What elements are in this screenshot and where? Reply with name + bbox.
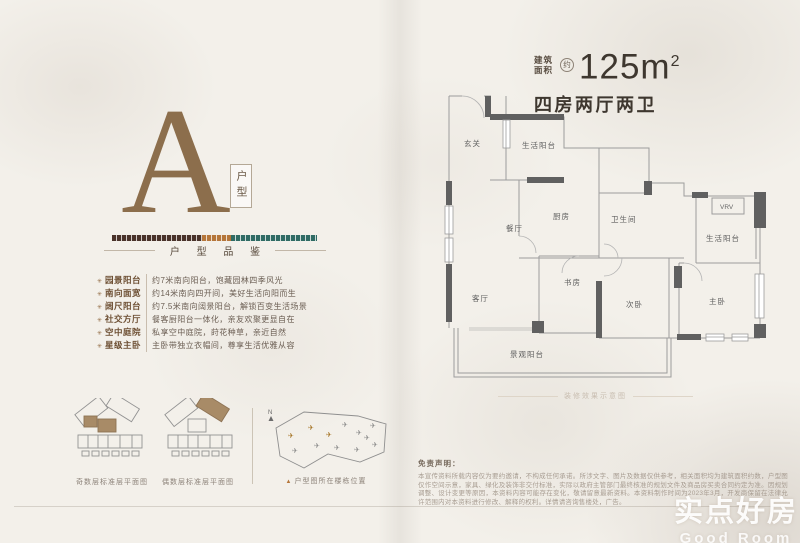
diagram-divider bbox=[252, 408, 253, 484]
room-label: 次卧 bbox=[626, 299, 643, 309]
feature-desc: 约14米南向四开间，美好生活向阳而生 bbox=[146, 287, 296, 300]
title-rule-right bbox=[275, 250, 326, 251]
svg-text:✈: ✈ bbox=[370, 423, 376, 430]
svg-text:✈: ✈ bbox=[342, 422, 348, 429]
windows bbox=[445, 120, 764, 341]
odd-floor-plate-diagram bbox=[75, 398, 142, 456]
svg-text:✈: ✈ bbox=[314, 443, 320, 450]
svg-text:✈: ✈ bbox=[364, 435, 370, 442]
room-label: 玄关 bbox=[464, 138, 481, 148]
room-label: 主卧 bbox=[709, 296, 726, 306]
feature-label: 园景阳台 bbox=[105, 274, 141, 287]
section-title-text: 户 型 品 鉴 bbox=[163, 243, 267, 258]
feature-desc: 私享空中庭院，莳花种草，亲近自然 bbox=[146, 326, 286, 339]
list-item: ✳ 南向面宽 约14米南向四开间，美好生活向阳而生 bbox=[97, 287, 349, 300]
bar-segment-copper bbox=[202, 235, 231, 241]
flower-bullet-icon: ✳ bbox=[97, 289, 102, 302]
floorplate-and-siteplan-diagrams: N ✈ ✈ ✈ ✈ ✈ ✈ ✈ ✈ ✈ ✈ ✈ ✈ bbox=[30, 398, 390, 480]
svg-text:✈: ✈ bbox=[292, 448, 298, 455]
title-rule-left bbox=[104, 250, 155, 251]
feature-label: 星级主卧 bbox=[105, 339, 141, 352]
room-label: 书房 bbox=[564, 277, 581, 287]
feature-desc: 主卧带独立衣帽间，尊享生活优雅从容 bbox=[146, 339, 295, 352]
feature-label: 阔尺阳台 bbox=[105, 300, 141, 313]
vrv-label: VRV bbox=[720, 204, 734, 211]
flower-bullet-icon: ✳ bbox=[97, 315, 102, 328]
svg-text:✈: ✈ bbox=[308, 425, 314, 432]
disclaimer-block: 免责声明： 本宣传资料所载内容仅为要约邀请，不构成任何承诺。所涉文字、图片及数据… bbox=[418, 458, 788, 507]
even-floor-plate-diagram bbox=[165, 398, 232, 456]
disclaimer-text: 本宣传资料所载内容仅为要约邀请，不构成任何承诺。所涉文字、图片及数据仅供参考，相… bbox=[418, 473, 788, 507]
caption-rule-left bbox=[498, 396, 558, 397]
compass-arrow-icon bbox=[269, 416, 274, 421]
flower-bullet-icon: ✳ bbox=[97, 328, 102, 341]
even-floor-caption: 偶数层标准层平面图 bbox=[138, 477, 258, 487]
room-label: 卫生间 bbox=[611, 214, 637, 224]
area-value: 125m2 bbox=[579, 44, 680, 86]
approx-circle-badge: 约 bbox=[560, 58, 574, 72]
site-plan-caption: ▲户型图所在楼栋位置 bbox=[264, 476, 388, 486]
svg-text:✈: ✈ bbox=[356, 430, 362, 437]
room-label: 厨房 bbox=[553, 211, 570, 221]
building-markers: ✈ ✈ ✈ ✈ ✈ ✈ ✈ ✈ ✈ ✈ ✈ ✈ bbox=[288, 422, 378, 455]
feature-label: 南向面宽 bbox=[105, 287, 141, 300]
room-label: 景观阳台 bbox=[510, 349, 544, 359]
triangle-marker-icon: ▲ bbox=[286, 479, 293, 485]
feature-label: 社交方厅 bbox=[105, 313, 141, 326]
list-item: ✳ 社交方厅 餐客厨阳台一体化，亲友欢聚更显自在 bbox=[97, 313, 349, 326]
section-title: 户 型 品 鉴 bbox=[104, 244, 326, 256]
feature-desc: 约7.5米南向阔景阳台，解锁百变生活场景 bbox=[146, 300, 307, 313]
list-item: ✳ 空中庭院 私享空中庭院，莳花种草，亲近自然 bbox=[97, 326, 349, 339]
flower-bullet-icon: ✳ bbox=[97, 276, 102, 289]
list-item: ✳ 阔尺阳台 约7.5米南向阔景阳台，解锁百变生活场景 bbox=[97, 300, 349, 313]
bar-segment-brown bbox=[112, 235, 202, 241]
svg-text:✈: ✈ bbox=[288, 433, 294, 440]
watermark-en: Good Room bbox=[674, 530, 798, 543]
plan-caption: 装修效果示意图 bbox=[498, 391, 693, 401]
disclaimer-title: 免责声明： bbox=[418, 458, 788, 469]
caption-rule-right bbox=[633, 396, 693, 397]
svg-text:✈: ✈ bbox=[334, 445, 340, 452]
svg-text:✈: ✈ bbox=[326, 432, 332, 439]
room-label: 生活阳台 bbox=[706, 233, 740, 243]
flower-bullet-icon: ✳ bbox=[97, 341, 102, 354]
unit-type-tag: 户型 bbox=[230, 164, 252, 208]
compass-n-label: N bbox=[268, 410, 272, 416]
plan-caption-text: 装修效果示意图 bbox=[564, 391, 627, 401]
room-label: 客厅 bbox=[472, 293, 489, 303]
room-label: 生活阳台 bbox=[522, 140, 556, 150]
feature-label: 空中庭院 bbox=[105, 326, 141, 339]
decorative-color-bar bbox=[112, 235, 317, 241]
list-item: ✳ 星级主卧 主卧带独立衣帽间，尊享生活优雅从容 bbox=[97, 339, 349, 352]
feature-desc: 约7米南向阳台，饱藏园林四季风光 bbox=[146, 274, 283, 287]
feature-desc: 餐客厨阳台一体化，亲友欢聚更显自在 bbox=[146, 313, 295, 326]
feature-list: ✳ 园景阳台 约7米南向阳台，饱藏园林四季风光 ✳ 南向面宽 约14米南向四开间… bbox=[97, 274, 349, 352]
floorplan-svg: 玄关 生活阳台 厨房 餐厅 卫生间 VRV 生活阳台 客厅 书房 次卧 主卧 景… bbox=[444, 86, 766, 388]
svg-text:✈: ✈ bbox=[354, 447, 360, 454]
area-label: 建筑 面积 bbox=[534, 55, 553, 75]
bar-segment-teal bbox=[231, 235, 317, 241]
unit-type-letter: A bbox=[116, 86, 236, 236]
site-plan-diagram: N ✈ ✈ ✈ ✈ ✈ ✈ ✈ ✈ ✈ ✈ ✈ ✈ bbox=[268, 410, 386, 468]
brochure-page: A 户型 户 型 品 鉴 ✳ 园景阳台 约7米南向阳台，饱藏园林四季风光 ✳ 南… bbox=[0, 0, 800, 543]
flower-bullet-icon: ✳ bbox=[97, 302, 102, 315]
door-arcs bbox=[462, 96, 702, 281]
svg-text:✈: ✈ bbox=[372, 442, 378, 449]
list-item: ✳ 园景阳台 约7米南向阳台，饱藏园林四季风光 bbox=[97, 274, 349, 287]
room-label: 餐厅 bbox=[506, 224, 523, 233]
